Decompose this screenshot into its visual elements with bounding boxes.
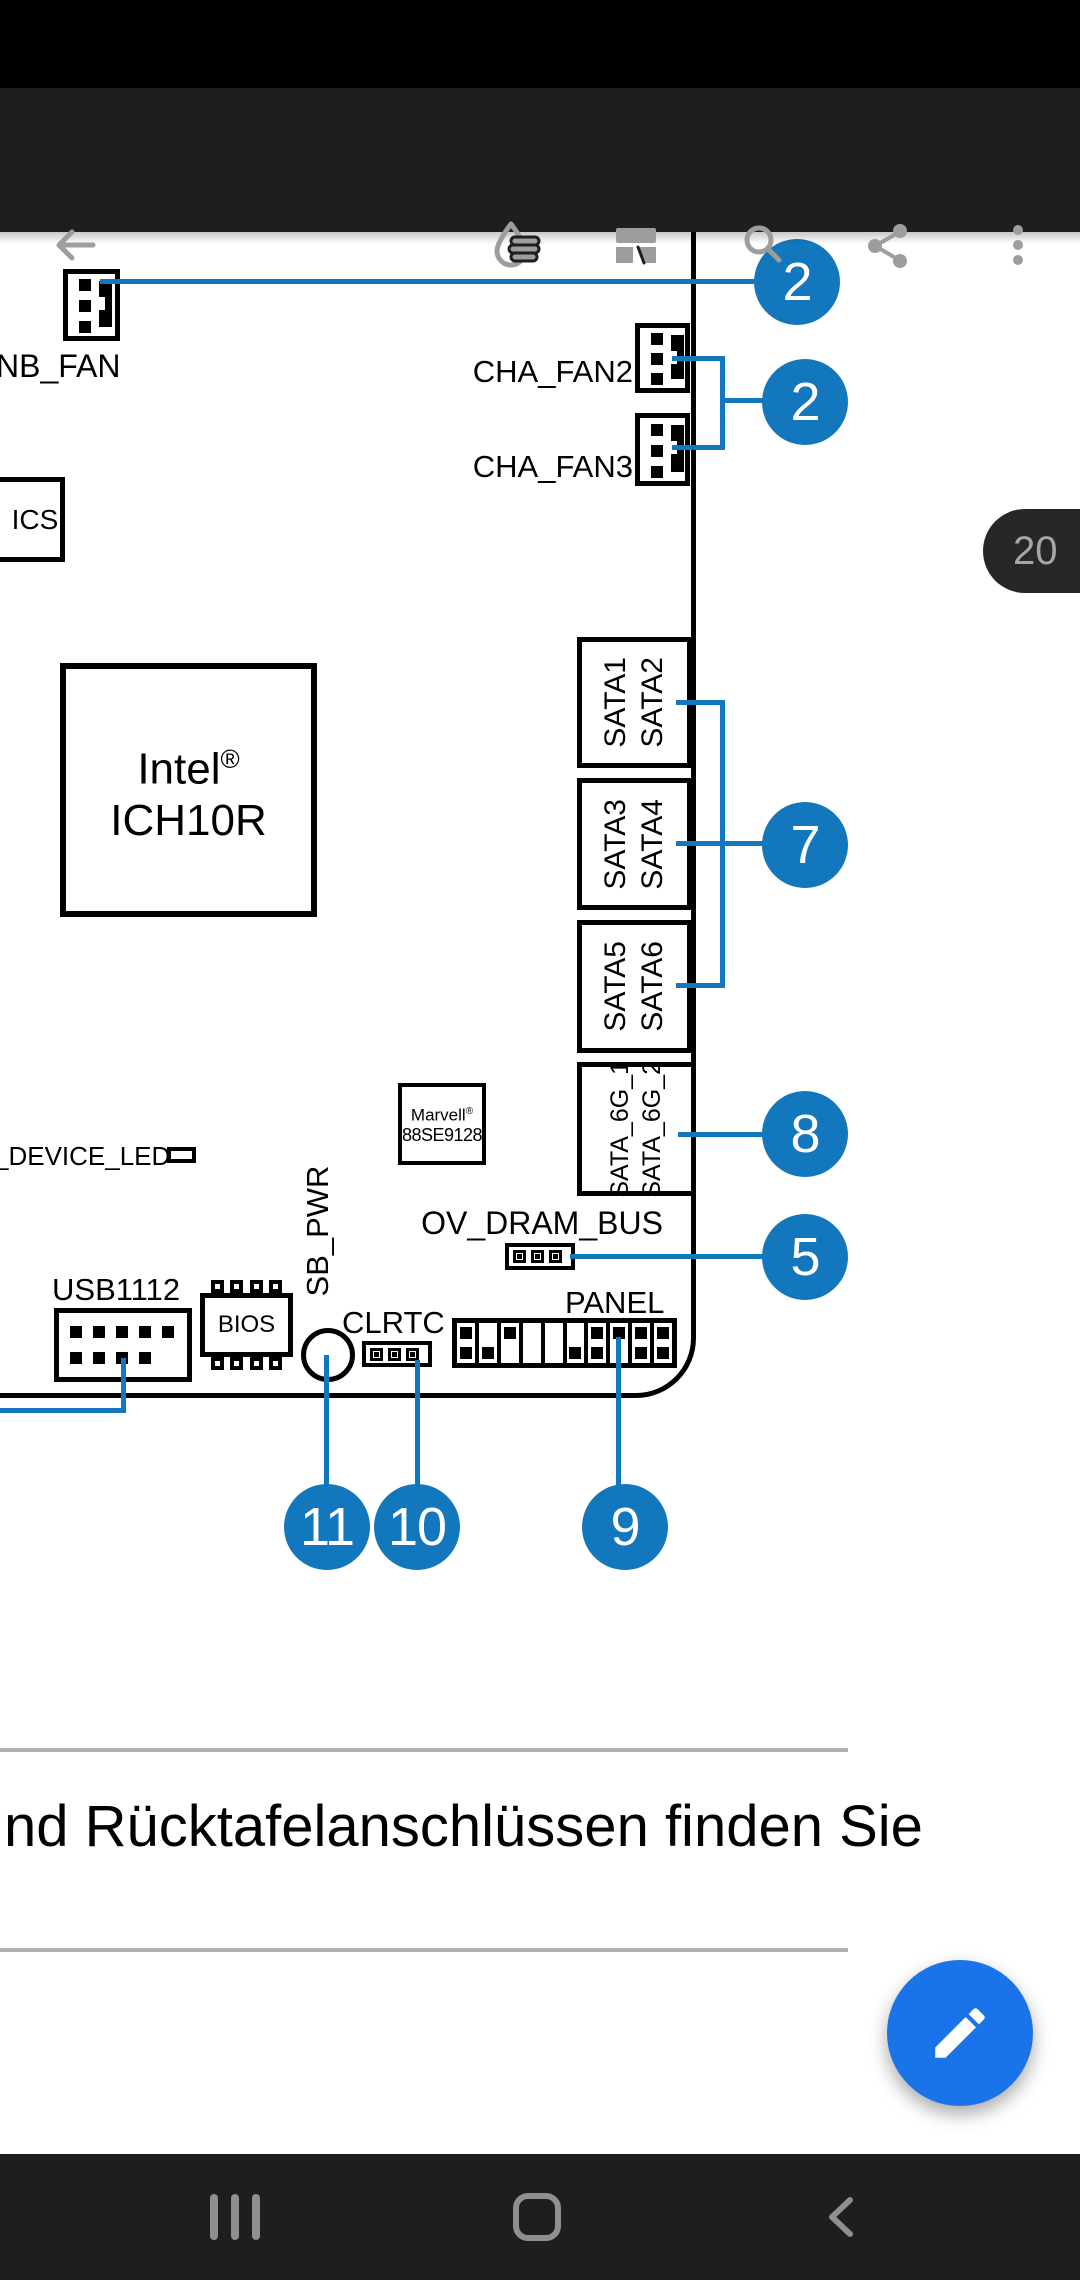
callout-11-sb-pwr: 11 [284, 1484, 370, 1570]
sata6g-connector: SATA_6G_1 SATA_6G_2 [577, 1062, 696, 1196]
bios-pins-bottom [200, 1357, 293, 1370]
app-bar [0, 88, 1080, 232]
ink-droplet-icon [489, 219, 541, 271]
back-chevron-icon [821, 2193, 869, 2241]
marvell-chip-name: Marvell® [411, 1102, 473, 1126]
sb-pwr-label: SB_PWR [300, 1151, 336, 1311]
page-number-badge: 20 [983, 509, 1080, 593]
nb-fan-label: NB_FAN [0, 348, 120, 385]
marvell-chip-model: 88SE9128 [402, 1125, 482, 1146]
callout-10-clrtc: 10 [374, 1484, 460, 1570]
sata12-connector: SATA1 SATA2 [577, 637, 692, 768]
cha-fan2-label: CHA_FAN2 [450, 354, 633, 390]
callout-5-ov: 5 [762, 1214, 848, 1300]
sata6-label: SATA6 [636, 941, 670, 1032]
usb1112-label: USB1112 [52, 1272, 180, 1308]
annotate-button[interactable] [487, 217, 543, 273]
bios-chip-label: BIOS [200, 1293, 293, 1357]
pdf-page[interactable]: NB_FAN CHA_FAN2 CHA_FAN3 ICS Intel® ICH1… [0, 232, 1080, 2154]
cha-fan3-label: CHA_FAN3 [450, 449, 633, 485]
table-divider-bottom [0, 1948, 848, 1952]
sata2-label: SATA2 [636, 657, 670, 748]
back-arrow-icon [51, 221, 99, 269]
sata1-label: SATA1 [599, 657, 633, 748]
edit-fab[interactable] [887, 1960, 1033, 2106]
back-nav-button[interactable] [785, 2154, 905, 2280]
back-button[interactable] [47, 217, 103, 273]
ics-chip: ICS [0, 477, 65, 562]
page-view-button[interactable] [608, 217, 664, 273]
overflow-menu-button[interactable] [990, 217, 1046, 273]
callout-line-sata34 [676, 841, 766, 846]
callout-line-panel [616, 1337, 621, 1487]
marvell-chip: Marvell® 88SE9128 [398, 1083, 486, 1165]
body-text: nd Rücktafelanschlüssen finden Sie [4, 1793, 923, 1860]
recents-icon [210, 2194, 260, 2240]
callout-line-sata12 [676, 700, 725, 705]
callout-line-ov-dram-bus [570, 1254, 766, 1259]
callout-line-clrtc [415, 1360, 420, 1487]
intel-chip-model: ICH10R [110, 795, 267, 847]
sata56-connector: SATA5 SATA6 [577, 920, 692, 1053]
callout-2-cha-fans: 2 [762, 359, 848, 445]
sata4-label: SATA4 [636, 799, 670, 890]
status-bar [0, 0, 1080, 88]
callout-line-nb-fan [100, 279, 760, 284]
callout-7-sata: 7 [762, 802, 848, 888]
callout-line-usb-h [0, 1408, 126, 1413]
share-button[interactable] [860, 217, 916, 273]
search-button[interactable] [735, 217, 791, 273]
ics-chip-label: ICS [12, 504, 59, 536]
recents-button[interactable] [175, 2154, 295, 2280]
navigation-bar [0, 2154, 1080, 2280]
bios-chip: BIOS [200, 1280, 293, 1370]
callout-line-usb-v [121, 1358, 126, 1413]
page-layout-icon [611, 220, 661, 270]
bios-pins-top [200, 1280, 293, 1293]
device-led-icon [167, 1147, 196, 1163]
ov-dram-bus-label: OV_DRAM_BUS [412, 1205, 672, 1242]
clrtc-jumper [362, 1341, 432, 1367]
callout-bracket-cha-fans [720, 356, 725, 450]
share-icon [863, 220, 913, 270]
pencil-icon [927, 2000, 993, 2066]
panel-label: PANEL [565, 1285, 664, 1321]
home-button[interactable] [477, 2154, 597, 2280]
table-divider-top [0, 1748, 848, 1752]
callout-line-sb-pwr [324, 1355, 329, 1487]
sata6g1-label: SATA_6G_1 [606, 1061, 635, 1198]
callout-line-sata6g [678, 1132, 766, 1137]
sata34-connector: SATA3 SATA4 [577, 778, 692, 910]
panel-connector [452, 1318, 677, 1368]
sata5-label: SATA5 [599, 941, 633, 1032]
intel-chip-name: Intel® [137, 733, 239, 796]
callout-line-cha-fan3 [672, 445, 725, 450]
page-number: 20 [1013, 529, 1058, 574]
sata6g2-label: SATA_6G_2 [638, 1061, 667, 1198]
ov-dram-bus-jumper [505, 1243, 575, 1270]
sata3-label: SATA3 [599, 799, 633, 890]
callout-9-panel: 9 [582, 1484, 668, 1570]
clrtc-label: CLRTC [342, 1305, 445, 1341]
intel-ich10r-chip: Intel® ICH10R [60, 663, 317, 917]
callout-line-cha-fan2 [672, 356, 725, 361]
callout-line-cha-fans [720, 398, 766, 403]
callout-8-sata6g: 8 [762, 1091, 848, 1177]
home-icon [513, 2193, 561, 2241]
callout-line-sata56 [676, 983, 725, 988]
device-led-label: _DEVICE_LED [0, 1141, 170, 1172]
overflow-menu-icon [993, 220, 1043, 270]
search-icon [738, 220, 788, 270]
